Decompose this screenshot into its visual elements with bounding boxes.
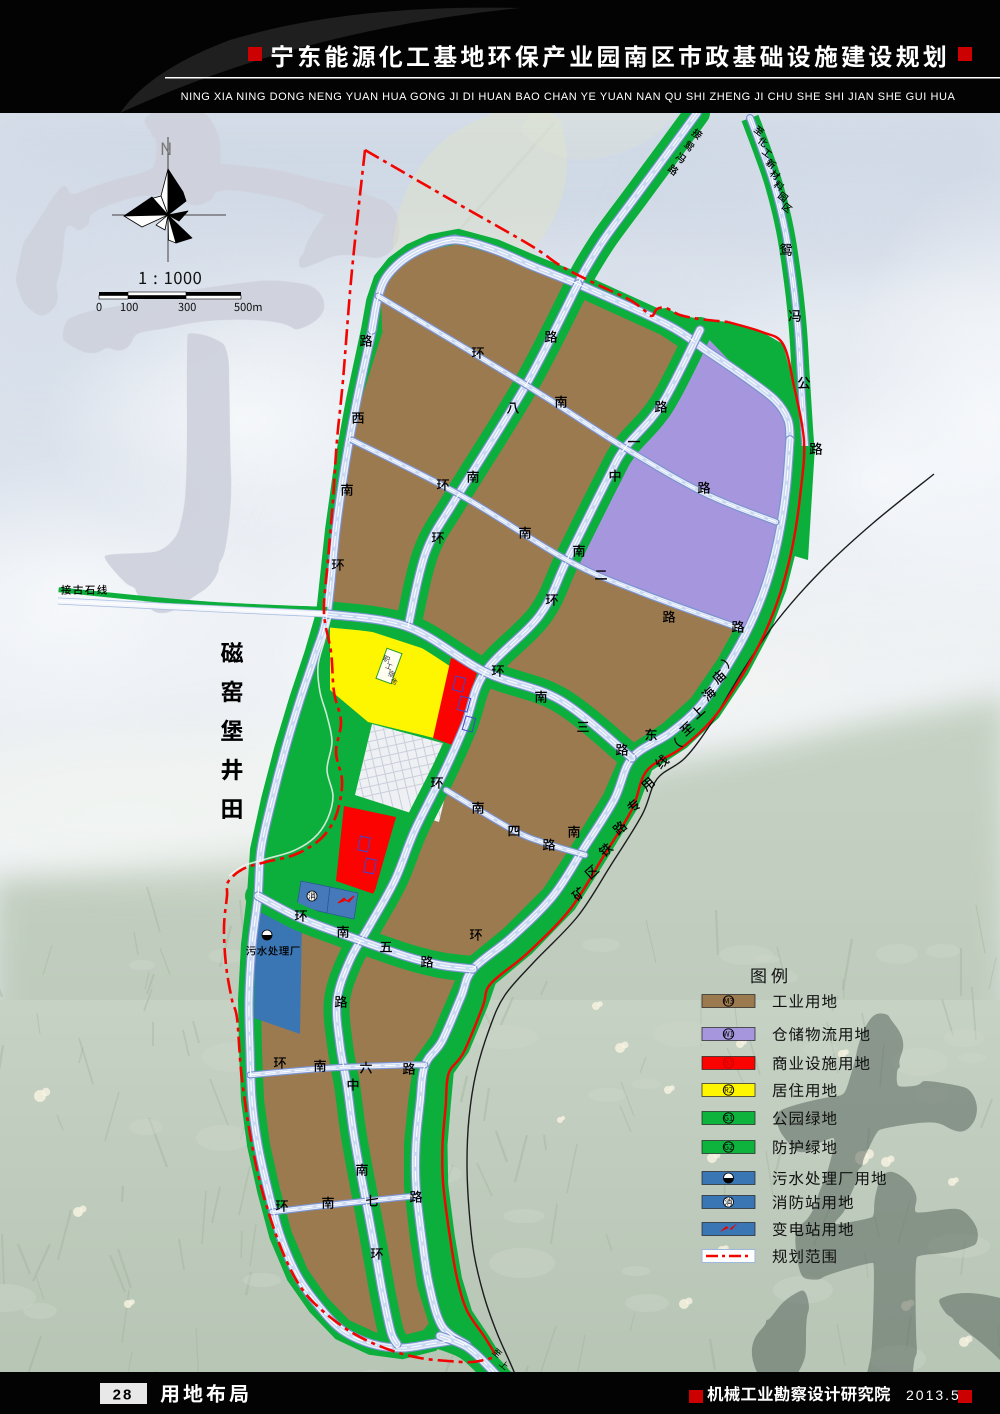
svg-text:28: 28 — [113, 1387, 134, 1404]
svg-text:NING XIA NING DONG NENG YUAN H: NING XIA NING DONG NENG YUAN HUA GONG JI… — [181, 91, 956, 103]
svg-text:2013.5: 2013.5 — [906, 1387, 961, 1403]
